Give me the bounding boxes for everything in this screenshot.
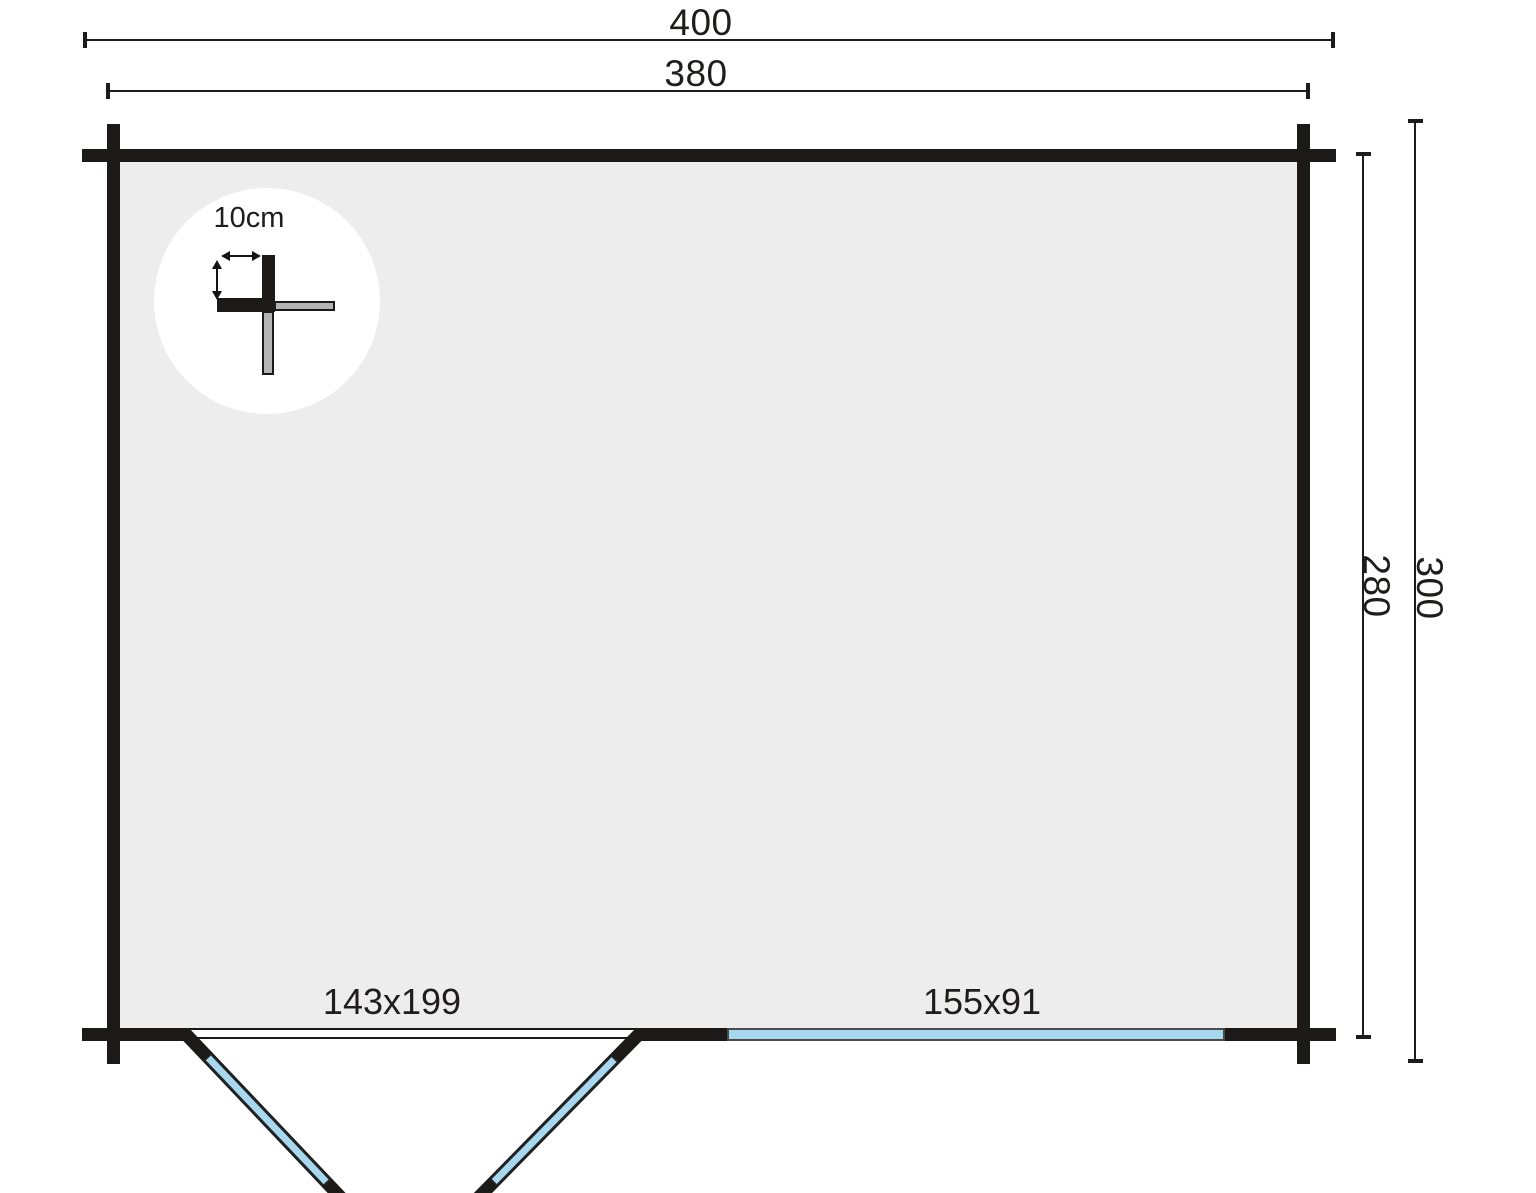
dimension-tick	[83, 32, 87, 48]
dimension-label-overall-width: 400	[601, 4, 801, 41]
dimension-tick	[1331, 32, 1335, 48]
detail-log-gray-down	[262, 311, 274, 375]
door-size-label: 143x199	[242, 982, 542, 1022]
dimension-label-wall-depth: 280	[1356, 526, 1396, 646]
dimension-label-overall-depth: 300	[1409, 528, 1449, 648]
dimension-tick	[1356, 152, 1371, 156]
wall-bottom-left-segment	[82, 1028, 189, 1041]
floor-plan: 400 380 143x199 155x91 280 300 10cm	[0, 0, 1536, 1193]
dimension-tick	[106, 83, 110, 99]
window	[727, 1028, 1225, 1041]
door-leaf-glazing	[490, 1056, 618, 1186]
dimension-tick	[1356, 1035, 1371, 1039]
door-leaf-right	[469, 1030, 643, 1193]
detail-log-gray-right	[274, 301, 335, 311]
height-arrow-icon	[212, 260, 222, 300]
width-arrow-icon	[221, 251, 261, 261]
door-leaf-glazing	[204, 1054, 330, 1186]
dimension-label-wall-width: 380	[596, 55, 796, 92]
door-leaf-left	[180, 1028, 351, 1193]
wall-right	[1297, 124, 1310, 1064]
dimension-tick	[1306, 83, 1310, 99]
window-size-label: 155x91	[832, 982, 1132, 1022]
wall-top	[82, 149, 1336, 162]
dimension-line-wall-width	[107, 90, 1309, 92]
door-threshold	[189, 1028, 634, 1039]
wall-left	[107, 124, 120, 1064]
detail-log-black-left	[217, 298, 275, 312]
dimension-tick	[1408, 119, 1423, 123]
dimension-tick	[1408, 1059, 1423, 1063]
wall-bottom-middle-segment	[633, 1028, 727, 1041]
wall-bottom-right-segment	[1225, 1028, 1336, 1041]
wall-thickness-label: 10cm	[188, 204, 310, 233]
dimension-line-overall-width	[84, 39, 1334, 41]
